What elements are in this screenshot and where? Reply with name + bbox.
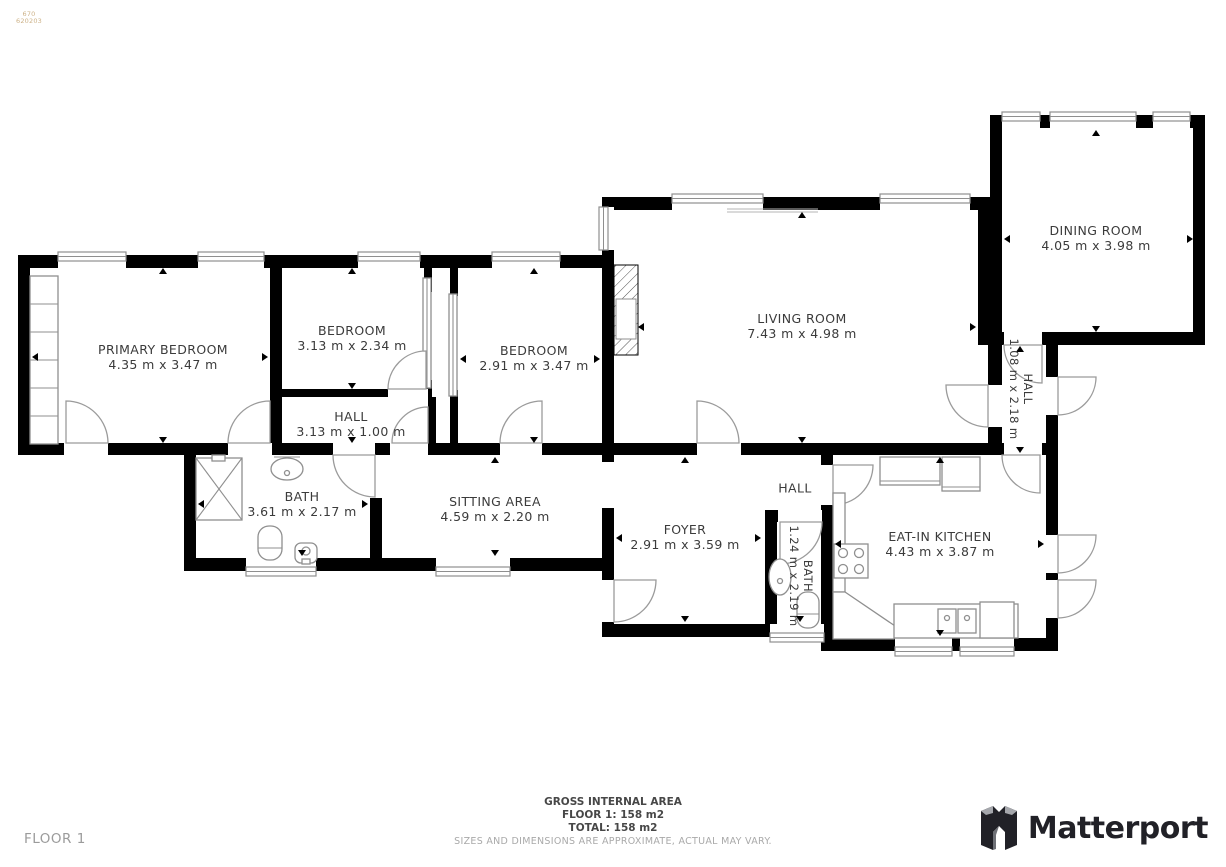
room-label-primary-bedroom: PRIMARY BEDROOM 4.35 m x 3.47 m xyxy=(98,342,228,372)
room-label-sitting-area: SITTING AREA 4.59 m x 2.20 m xyxy=(440,494,549,524)
matterport-wordmark: Matterport xyxy=(1028,811,1208,846)
room-dims: 3.13 m x 1.00 m xyxy=(296,424,405,439)
room-label-living-room: LIVING ROOM 7.43 m x 4.98 m xyxy=(747,311,856,341)
room-label-bath-small: BATH 1.24 m x 2.19 m xyxy=(787,525,815,626)
room-name: HALL xyxy=(334,409,367,424)
room-name: SITTING AREA xyxy=(449,494,541,509)
area-summary: GROSS INTERNAL AREA FLOOR 1: 158 m2 TOTA… xyxy=(454,796,772,848)
room-name: BEDROOM xyxy=(318,323,386,338)
area-disclaimer: SIZES AND DIMENSIONS ARE APPROXIMATE, AC… xyxy=(454,835,772,848)
room-name: EAT-IN KITCHEN xyxy=(888,529,991,544)
room-name: DINING ROOM xyxy=(1050,223,1143,238)
room-name: HALL xyxy=(778,481,811,496)
room-dims: 4.35 m x 3.47 m xyxy=(108,357,217,372)
room-name: LIVING ROOM xyxy=(757,311,846,326)
room-name: BATH xyxy=(801,560,815,592)
room-label-hall-rear: HALL 1.08 m x 2.18 m xyxy=(1007,338,1035,439)
area-summary-title: GROSS INTERNAL AREA xyxy=(454,796,772,809)
floorplan-canvas: 670 620203 xyxy=(0,0,1226,867)
room-label-dining-room: DINING ROOM 4.05 m x 3.98 m xyxy=(1041,223,1150,253)
matterport-brand: Matterport xyxy=(979,806,1208,851)
room-dims: 3.13 m x 2.34 m xyxy=(297,338,406,353)
closet-shelving xyxy=(30,276,58,444)
room-dims: 7.43 m x 4.98 m xyxy=(747,326,856,341)
room-label-eat-in-kitchen: EAT-IN KITCHEN 4.43 m x 3.87 m xyxy=(885,529,994,559)
room-label-bedroom-1: BEDROOM 3.13 m x 2.34 m xyxy=(297,323,406,353)
room-dims: 1.24 m x 2.19 m xyxy=(787,525,801,626)
room-name: HALL xyxy=(1021,374,1035,405)
area-summary-total: TOTAL: 158 m2 xyxy=(454,822,772,835)
floorplan-drawing xyxy=(0,0,1226,867)
area-summary-floor: FLOOR 1: 158 m2 xyxy=(454,809,772,822)
room-name: PRIMARY BEDROOM xyxy=(98,342,228,357)
room-label-hall-kitchen: HALL xyxy=(778,481,811,496)
matterport-logo-icon xyxy=(979,806,1019,851)
room-dims: 3.61 m x 2.17 m xyxy=(247,504,356,519)
room-name: FOYER xyxy=(664,522,707,537)
room-label-bath-large: BATH 3.61 m x 2.17 m xyxy=(247,489,356,519)
room-dims: 2.91 m x 3.47 m xyxy=(479,358,588,373)
room-label-foyer: FOYER 2.91 m x 3.59 m xyxy=(630,522,739,552)
floor-label: FLOOR 1 xyxy=(24,831,86,847)
fireplace xyxy=(614,265,638,355)
room-dims: 2.91 m x 3.59 m xyxy=(630,537,739,552)
sliding-door-panels xyxy=(423,278,457,396)
room-dims: 4.05 m x 3.98 m xyxy=(1041,238,1150,253)
room-dims: 1.08 m x 2.18 m xyxy=(1007,338,1021,439)
room-name: BEDROOM xyxy=(500,343,568,358)
room-dims: 4.59 m x 2.20 m xyxy=(440,509,549,524)
room-label-bedroom-2: BEDROOM 2.91 m x 3.47 m xyxy=(479,343,588,373)
room-dims: 4.43 m x 3.87 m xyxy=(885,544,994,559)
room-name: BATH xyxy=(285,489,320,504)
room-label-hall-bedrooms: HALL 3.13 m x 1.00 m xyxy=(296,409,405,439)
